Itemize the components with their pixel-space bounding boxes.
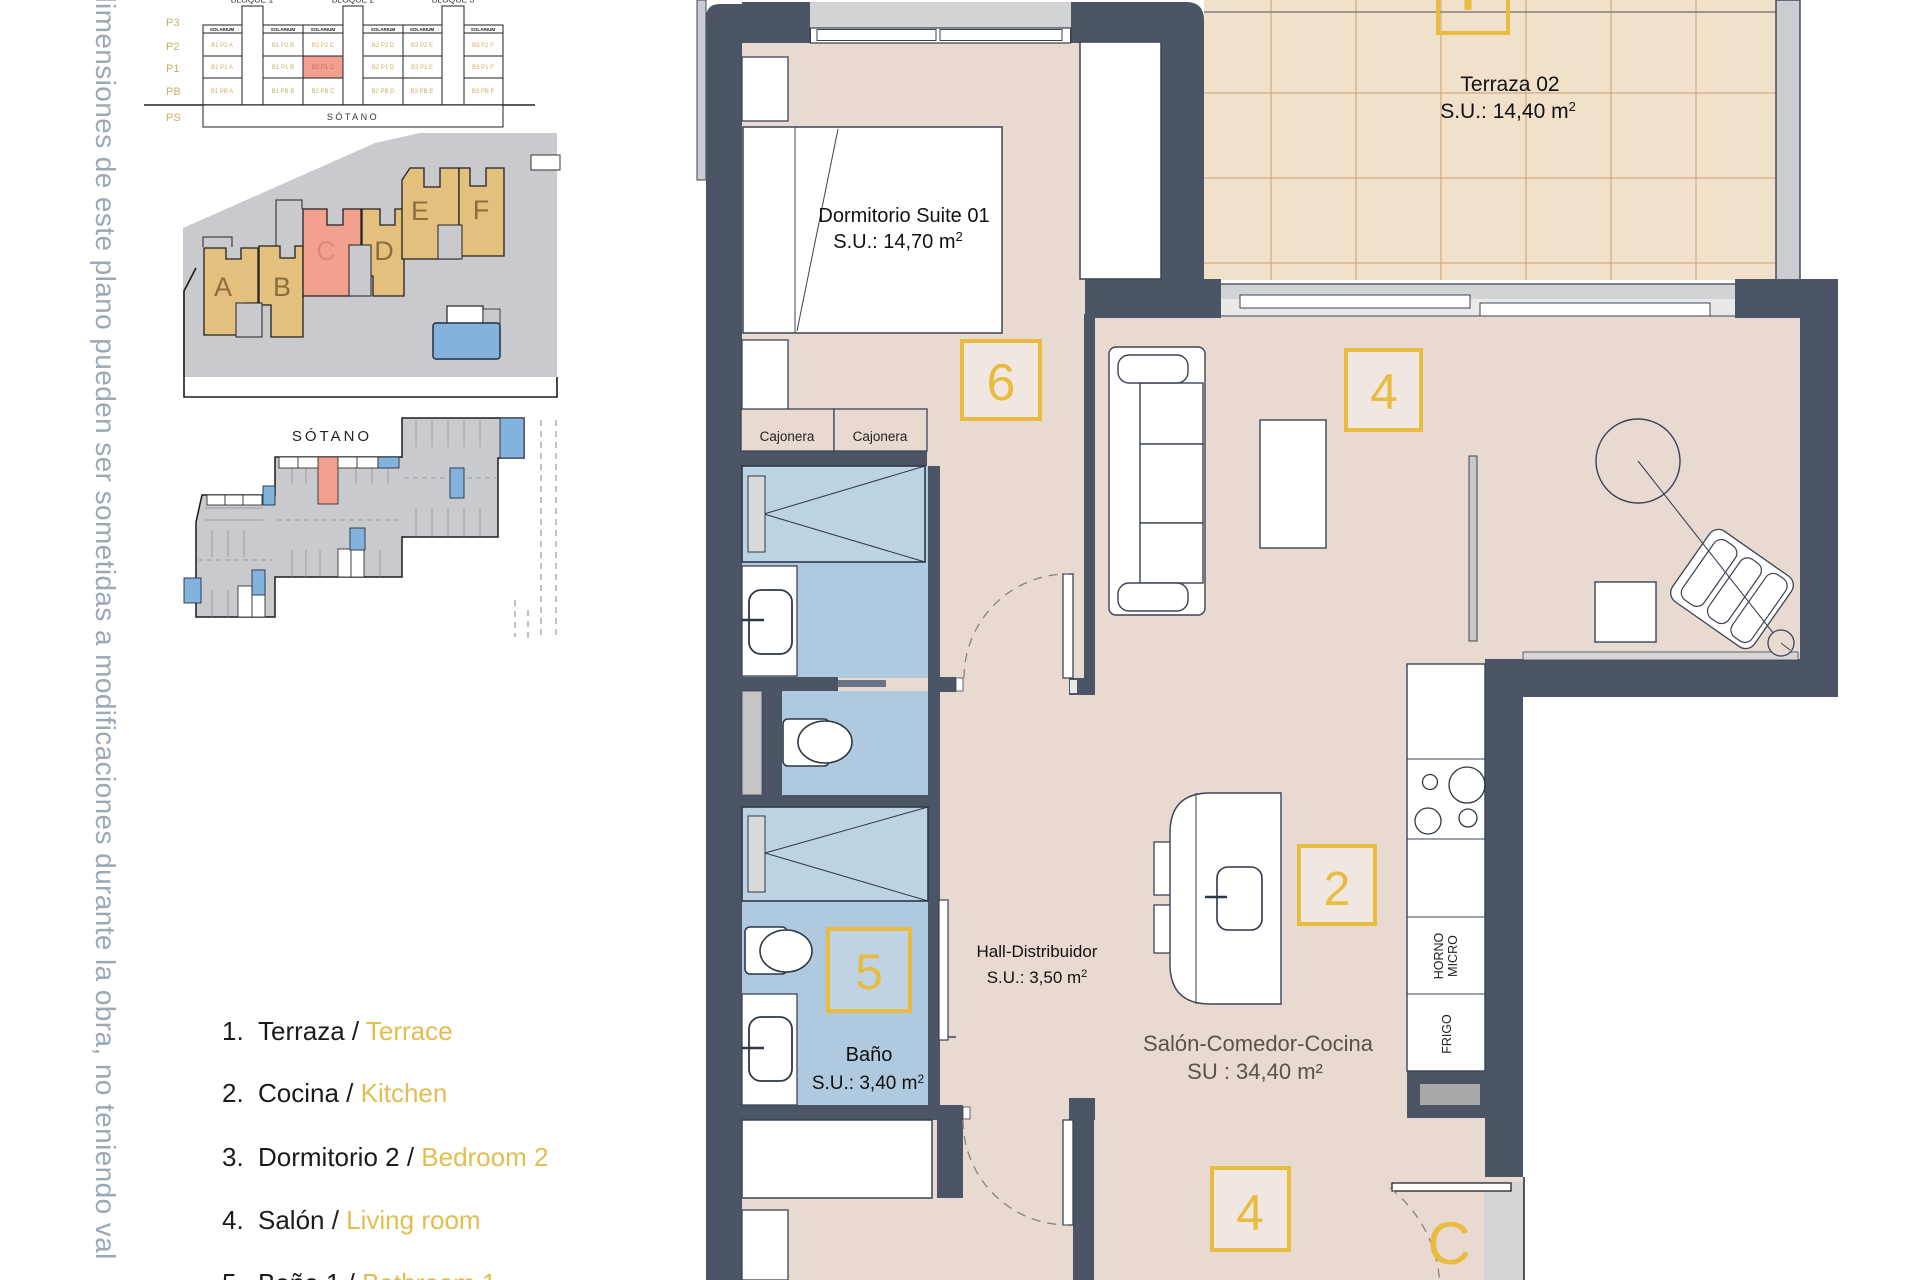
svg-text:SÓTANO: SÓTANO [327,112,379,122]
svg-text:B1 P2 B: B1 P2 B [272,43,294,49]
svg-text:dimensiones de este plano pued: dimensiones de este plano pueden ser som… [90,0,121,1260]
svg-text:P1: P1 [166,63,179,75]
svg-text:4: 4 [1370,364,1398,420]
svg-text:SOLARIUM: SOLARIUM [371,27,396,32]
svg-text:Hall-Distribuidor: Hall-Distribuidor [977,942,1098,961]
svg-text:B1 P1 A: B1 P1 A [211,65,233,71]
svg-text:B2 P1 C: B2 P1 C [312,65,335,71]
svg-text:B2 PB C: B2 PB C [311,89,335,95]
svg-text:B2 PB D: B2 PB D [371,89,395,95]
svg-text:MICRO: MICRO [1446,935,1460,977]
svg-text:SÓTANO: SÓTANO [292,428,372,445]
svg-text:P3: P3 [166,17,179,29]
svg-text:BLOQUE 3: BLOQUE 3 [432,0,475,5]
svg-text:B3 P2 F: B3 P2 F [472,43,494,49]
svg-text:B3 PB F: B3 PB F [472,89,495,95]
svg-text:B3 P1 E: B3 P1 E [411,65,433,71]
svg-text:3.: 3. [222,1142,244,1172]
svg-text:Cajonera: Cajonera [760,429,815,444]
svg-text:E: E [411,196,429,226]
svg-text:5: 5 [855,944,883,1000]
svg-text:B1 PB A: B1 PB A [211,89,233,95]
svg-text:SOLARIUM: SOLARIUM [210,27,235,32]
svg-text:C: C [316,236,336,266]
svg-text:Cocina / Kitchen: Cocina / Kitchen [258,1078,447,1108]
svg-text:Baño 1 / Bathroom 1: Baño 1 / Bathroom 1 [258,1268,496,1280]
svg-text:S.U.: 14,40 m2: S.U.: 14,40 m2 [1440,99,1576,123]
svg-text:SOLARIUM: SOLARIUM [410,27,435,32]
svg-text:4.: 4. [222,1205,244,1235]
svg-text:C: C [1427,1210,1470,1277]
svg-text:B2 P2 D: B2 P2 D [372,43,395,49]
svg-text:S.U.: 3,40 m2: S.U.: 3,40 m2 [812,1072,925,1094]
svg-text:2.: 2. [222,1078,244,1108]
svg-text:Salón / Living room: Salón / Living room [258,1205,481,1235]
svg-text:F: F [473,195,490,225]
svg-text:B2 P2 C: B2 P2 C [312,43,335,49]
svg-text:6: 6 [987,354,1016,412]
svg-text:2: 2 [1324,863,1351,916]
svg-text:D: D [374,236,394,266]
svg-text:B3 P2 E: B3 P2 E [411,43,433,49]
svg-text:1.: 1. [222,1016,244,1046]
svg-text:FRIGO: FRIGO [1440,1014,1454,1054]
svg-text:4: 4 [1236,1185,1264,1241]
svg-text:5.: 5. [222,1268,244,1280]
svg-text:B1 P2 A: B1 P2 A [211,43,233,49]
svg-text:B2 P1 D: B2 P1 D [372,65,395,71]
svg-text:Terraza / Terrace: Terraza / Terrace [258,1016,453,1046]
svg-text:S.U.: 14,70 m2: S.U.: 14,70 m2 [833,229,963,253]
svg-text:B1 PB B: B1 PB B [272,89,295,95]
svg-text:SOLARIUM: SOLARIUM [471,27,496,32]
svg-text:Cajonera: Cajonera [853,429,908,444]
svg-text:Salón-Comedor-Cocina: Salón-Comedor-Cocina [1143,1031,1374,1056]
svg-text:P2: P2 [166,41,179,53]
svg-text:B3 P1 F: B3 P1 F [472,65,494,71]
svg-text:Dormitorio 2 / Bedroom 2: Dormitorio 2 / Bedroom 2 [258,1142,548,1172]
svg-text:A: A [214,272,232,302]
svg-text:B: B [273,272,291,302]
svg-text:SOLARIUM: SOLARIUM [271,27,296,32]
svg-text:B3 PB E: B3 PB E [411,89,434,95]
svg-text:PB: PB [166,86,181,98]
svg-text:Dormitorio Suite 01: Dormitorio Suite 01 [818,205,989,227]
svg-text:BLOQUE 1: BLOQUE 1 [231,0,274,5]
svg-text:SU : 34,40 m²: SU : 34,40 m² [1187,1059,1323,1084]
svg-text:B1 P1 B: B1 P1 B [272,65,294,71]
svg-text:PS: PS [166,112,181,124]
svg-text:Terraza 02: Terraza 02 [1460,73,1559,96]
svg-text:SOLARIUM: SOLARIUM [311,27,336,32]
svg-text:BLOQUE 2: BLOQUE 2 [332,0,375,5]
svg-text:Baño: Baño [846,1044,893,1066]
svg-text:HORNO: HORNO [1432,932,1446,979]
svg-text:S.U.: 3,50 m2: S.U.: 3,50 m2 [987,968,1088,987]
